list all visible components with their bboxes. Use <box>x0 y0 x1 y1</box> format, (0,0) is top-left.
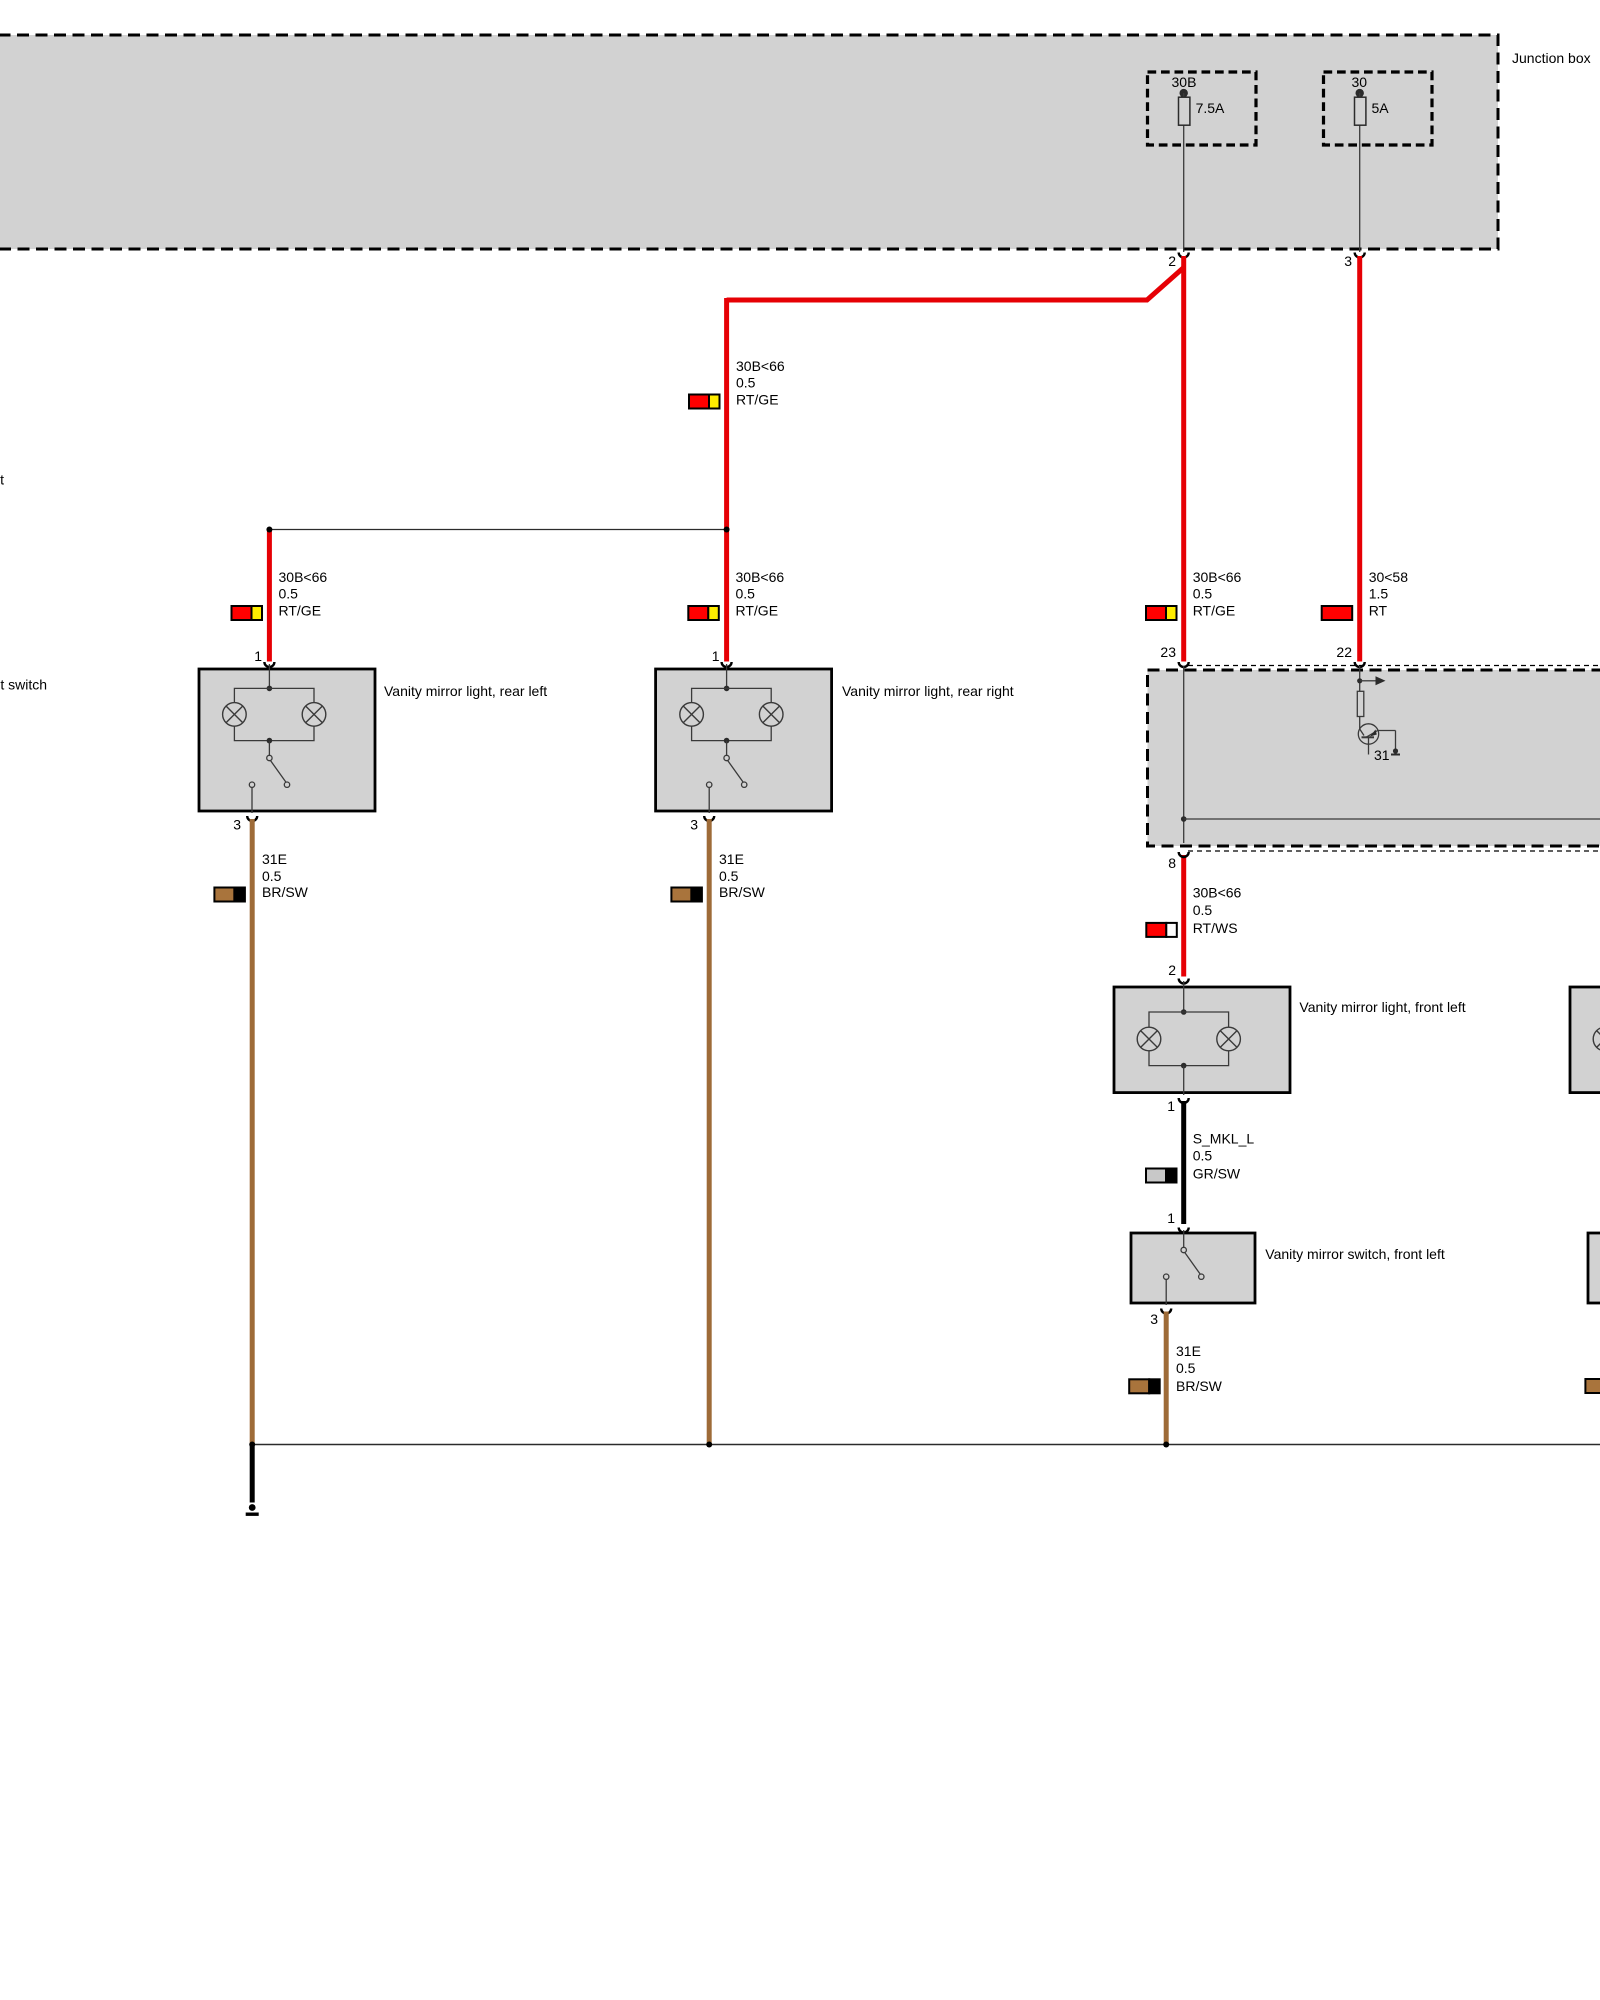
svg-text:30B<66: 30B<66 <box>1193 885 1242 901</box>
svg-text:3: 3 <box>233 817 241 833</box>
svg-text:31E: 31E <box>1176 1343 1201 1359</box>
svg-text:0.5: 0.5 <box>262 868 282 884</box>
svg-text:BR/SW: BR/SW <box>262 884 309 900</box>
svg-text:8: 8 <box>1168 855 1176 871</box>
svg-text:0.5: 0.5 <box>1193 902 1213 918</box>
svg-text:0.5: 0.5 <box>1193 1148 1213 1164</box>
svg-text:Vanity mirror light, front lef: Vanity mirror light, front left <box>1299 999 1465 1015</box>
svg-text:1: 1 <box>712 648 720 664</box>
svg-text:30B<66: 30B<66 <box>736 569 785 585</box>
svg-text:0.5: 0.5 <box>1193 586 1213 602</box>
svg-text:30B: 30B <box>1172 74 1197 90</box>
svg-text:2: 2 <box>1168 962 1176 978</box>
svg-text:3: 3 <box>1344 253 1352 269</box>
svg-text:GR/SW: GR/SW <box>1193 1166 1241 1182</box>
svg-text:Vanity mirror light, rear righ: Vanity mirror light, rear right <box>842 683 1014 699</box>
svg-text:30<58: 30<58 <box>1369 569 1409 585</box>
svg-text:3: 3 <box>690 817 698 833</box>
svg-text:S_MKL_L: S_MKL_L <box>1193 1131 1255 1147</box>
svg-text:BR/SW: BR/SW <box>1176 1378 1223 1394</box>
svg-text:1: 1 <box>254 648 262 664</box>
svg-text:31E: 31E <box>719 851 744 867</box>
svg-text:Vanity mirror switch, front le: Vanity mirror switch, front left <box>1265 1246 1445 1262</box>
svg-text:3: 3 <box>1150 1311 1158 1327</box>
svg-text:1: 1 <box>1167 1098 1175 1114</box>
svg-text:RT/GE: RT/GE <box>279 602 322 618</box>
svg-text:RT/GE: RT/GE <box>736 602 779 618</box>
svg-text:30B<66: 30B<66 <box>736 358 785 374</box>
svg-text:BR/SW: BR/SW <box>719 884 766 900</box>
svg-text:Interior light switch: Interior light switch <box>0 677 47 693</box>
svg-text:31: 31 <box>1374 747 1390 763</box>
svg-text:7.5A: 7.5A <box>1196 100 1225 116</box>
svg-text:2: 2 <box>1168 253 1176 269</box>
svg-text:0.5: 0.5 <box>279 586 299 602</box>
svg-text:0.5: 0.5 <box>736 586 756 602</box>
svg-text:30: 30 <box>1352 74 1368 90</box>
svg-text:5A: 5A <box>1372 100 1390 116</box>
svg-text:1.5: 1.5 <box>1369 586 1389 602</box>
svg-text:RT/GE: RT/GE <box>736 391 779 407</box>
svg-text:0.5: 0.5 <box>1176 1360 1196 1376</box>
svg-text:Interior light: Interior light <box>0 472 4 488</box>
svg-text:RT/WS: RT/WS <box>1193 920 1238 936</box>
svg-text:Junction box: Junction box <box>1512 50 1591 66</box>
svg-text:0.5: 0.5 <box>719 868 739 884</box>
svg-text:31E: 31E <box>262 851 287 867</box>
svg-text:Vanity mirror light, rear left: Vanity mirror light, rear left <box>384 683 547 699</box>
svg-text:RT/GE: RT/GE <box>1193 602 1236 618</box>
svg-text:22: 22 <box>1336 644 1352 660</box>
svg-text:0.5: 0.5 <box>736 375 756 391</box>
svg-text:23: 23 <box>1160 644 1176 660</box>
svg-text:RT: RT <box>1369 602 1388 618</box>
svg-text:30B<66: 30B<66 <box>279 569 328 585</box>
svg-text:1: 1 <box>1167 1210 1175 1226</box>
svg-text:30B<66: 30B<66 <box>1193 569 1242 585</box>
